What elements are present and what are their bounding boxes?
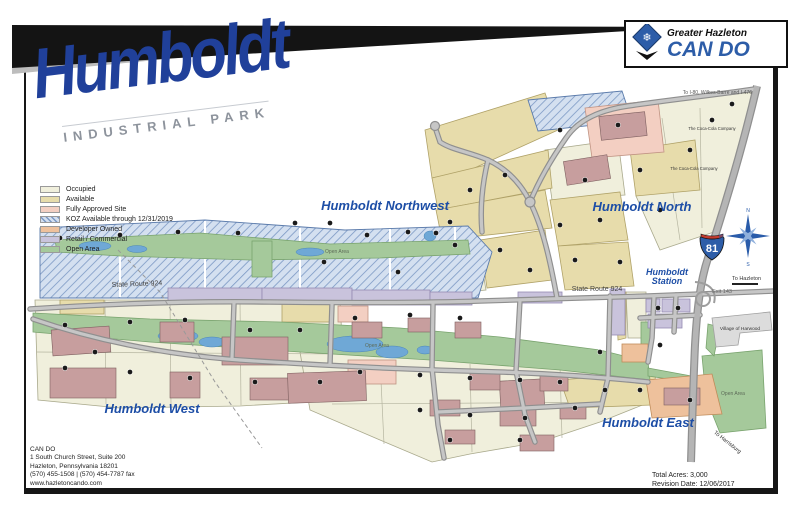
cando-logo: ❄ Greater Hazleton CAN DO bbox=[624, 20, 788, 68]
compass-e: E bbox=[773, 234, 777, 240]
legend-item-fully-approved: Fully Approved Site bbox=[40, 206, 173, 213]
region-label-northwest: Humboldt Northwest bbox=[321, 198, 449, 213]
legend-label: KOZ Available through 12/31/2019 bbox=[66, 216, 173, 223]
legend-item-developer-owned: Developer Owned bbox=[40, 226, 173, 233]
place-label-open-area-center: Open Area bbox=[365, 343, 389, 349]
legend-item-koz: KOZ Available through 12/31/2019 bbox=[40, 216, 173, 223]
map-poster: 81 N E S W Humboldt Northwest Humboldt N… bbox=[0, 0, 800, 518]
cando-diamond-icon: ❄ bbox=[632, 24, 662, 64]
legend-label: Available bbox=[66, 196, 94, 203]
contact-street: 1 South Church Street, Suite 200 bbox=[30, 454, 135, 462]
legend-item-retail-commercial: Retail / Commercial bbox=[40, 236, 173, 243]
compass-s: S bbox=[746, 262, 750, 268]
place-label-village-of-harwood: Village of Harwood bbox=[720, 326, 761, 332]
total-acres: Total Acres: 3,000 bbox=[652, 471, 735, 480]
road-label-to-hazleton: To Hazleton bbox=[732, 276, 761, 285]
map-meta-block: Total Acres: 3,000 Revision Date: 12/06/… bbox=[652, 471, 735, 489]
contact-phone: (570) 455-1508 | (570) 454-7787 fax bbox=[30, 471, 135, 479]
revision-date: Revision Date: 12/06/2017 bbox=[652, 480, 735, 489]
legend-label: Open Area bbox=[66, 246, 99, 253]
contact-org: CAN DO bbox=[30, 446, 135, 454]
legend-swatch-occupied bbox=[40, 186, 60, 193]
legend-swatch-available bbox=[40, 196, 60, 203]
place-label-open-area-nw: Open Area bbox=[325, 249, 349, 255]
map-legend: Occupied Available Fully Approved Site K… bbox=[40, 186, 173, 256]
legend-swatch-koz bbox=[40, 216, 60, 223]
legend-item-occupied: Occupied bbox=[40, 186, 173, 193]
park-title-block: Humboldt INDUSTRIAL PARK bbox=[28, 34, 318, 154]
contact-website: www.hazletoncando.com bbox=[30, 480, 135, 488]
legend-swatch-developer-owned bbox=[40, 226, 60, 233]
road-label-sr924-east: State Route 924 bbox=[572, 286, 623, 293]
legend-label: Retail / Commercial bbox=[66, 236, 127, 243]
place-label-coca-cola-2: The Coca-Cola Company bbox=[670, 166, 718, 171]
legend-item-open-area: Open Area bbox=[40, 246, 173, 253]
region-label-west: Humboldt West bbox=[104, 401, 200, 416]
region-label-north: Humboldt North bbox=[593, 199, 692, 214]
region-label-east: Humboldt East bbox=[602, 415, 694, 430]
legend-swatch-retail-commercial bbox=[40, 236, 60, 243]
svg-text:❄: ❄ bbox=[642, 32, 651, 44]
compass-w: W bbox=[719, 234, 724, 240]
contact-block: CAN DO 1 South Church Street, Suite 200 … bbox=[30, 446, 135, 488]
place-label-coca-cola-1: The Coca-Cola Company bbox=[688, 126, 736, 131]
region-label-station: Humboldt Station bbox=[638, 268, 696, 287]
interstate-number: 81 bbox=[706, 243, 718, 255]
contact-city: Hazleton, Pennsylvania 18201 bbox=[30, 463, 135, 471]
legend-label: Developer Owned bbox=[66, 226, 122, 233]
legend-item-available: Available bbox=[40, 196, 173, 203]
road-label-exit-143: Exit 143 bbox=[712, 289, 732, 295]
logo-brand: CAN DO bbox=[667, 39, 750, 60]
road-label-to-i80: To I-80, Wilkes-Barre and I-476 bbox=[678, 90, 752, 96]
legend-label: Occupied bbox=[66, 186, 96, 193]
logo-tagline: Greater Hazleton bbox=[667, 29, 750, 39]
legend-label: Fully Approved Site bbox=[66, 206, 126, 213]
place-label-open-area-east: Open Area bbox=[721, 391, 745, 397]
legend-swatch-fully-approved bbox=[40, 206, 60, 213]
compass-rose-icon: N E S W bbox=[719, 208, 778, 268]
cando-logo-text: Greater Hazleton CAN DO bbox=[667, 29, 750, 60]
compass-n: N bbox=[746, 208, 750, 214]
legend-swatch-open-area bbox=[40, 246, 60, 253]
